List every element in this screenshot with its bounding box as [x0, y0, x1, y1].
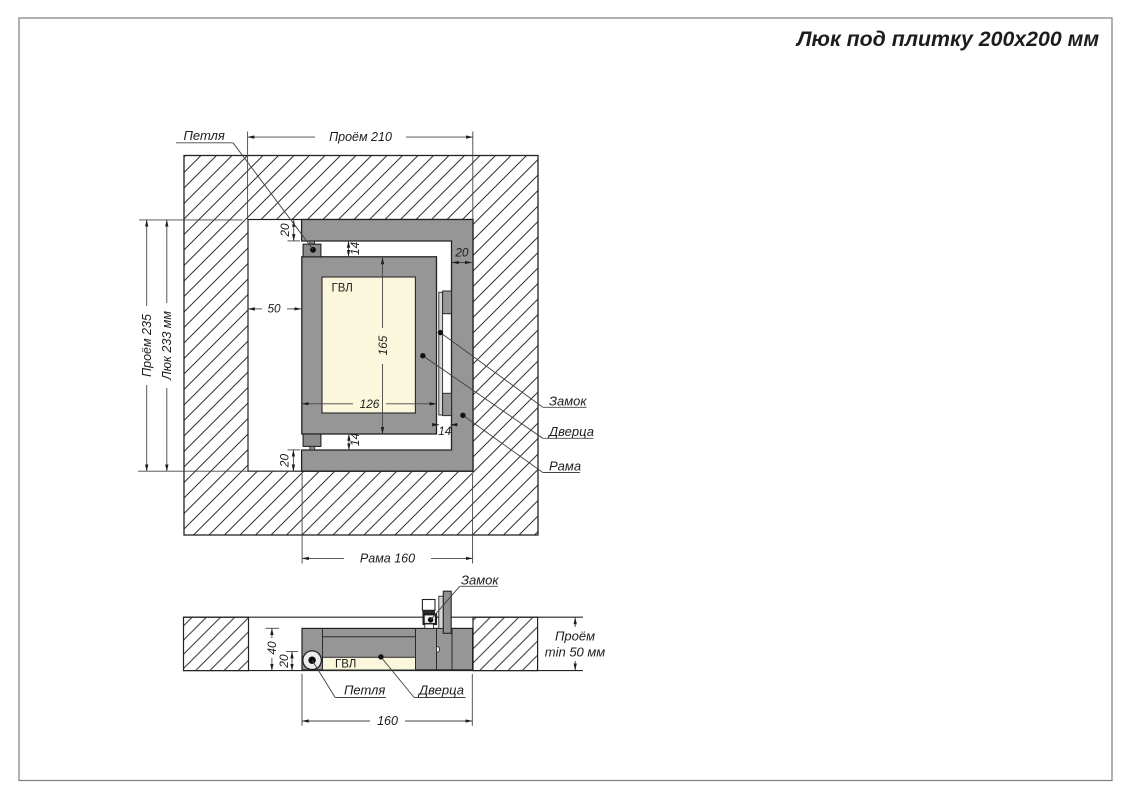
svg-text:Проём: Проём	[555, 629, 595, 644]
svg-text:ГВЛ: ГВЛ	[332, 283, 353, 295]
svg-text:min 50 мм: min 50 мм	[545, 645, 606, 660]
svg-text:20: 20	[454, 246, 469, 260]
svg-text:20: 20	[278, 454, 292, 469]
svg-text:20: 20	[278, 223, 292, 238]
svg-text:Люк под плитку 200x200 мм: Люк под плитку 200x200 мм	[795, 27, 1099, 51]
svg-text:40: 40	[265, 641, 279, 655]
svg-text:20: 20	[277, 654, 291, 669]
svg-text:160: 160	[377, 714, 398, 728]
svg-text:Петля: Петля	[344, 683, 385, 698]
svg-text:14: 14	[438, 424, 452, 438]
svg-text:14: 14	[348, 433, 362, 447]
svg-text:50: 50	[267, 302, 281, 316]
svg-text:Люк 233 мм: Люк 233 мм	[160, 311, 174, 381]
svg-text:Рама 160: Рама 160	[360, 552, 415, 566]
svg-text:14: 14	[348, 242, 362, 256]
svg-text:Проём 210: Проём 210	[329, 130, 392, 144]
svg-text:165: 165	[376, 335, 390, 355]
svg-text:Рама: Рама	[549, 458, 581, 473]
svg-text:Замок: Замок	[549, 394, 587, 409]
svg-text:Петля: Петля	[184, 128, 225, 143]
svg-text:ГВЛ: ГВЛ	[335, 658, 356, 670]
svg-text:126: 126	[360, 397, 380, 411]
svg-text:Проём 235: Проём 235	[140, 314, 154, 377]
svg-text:Дверца: Дверца	[417, 683, 464, 698]
svg-text:Замок: Замок	[461, 573, 499, 588]
svg-text:Дверца: Дверца	[547, 424, 594, 439]
